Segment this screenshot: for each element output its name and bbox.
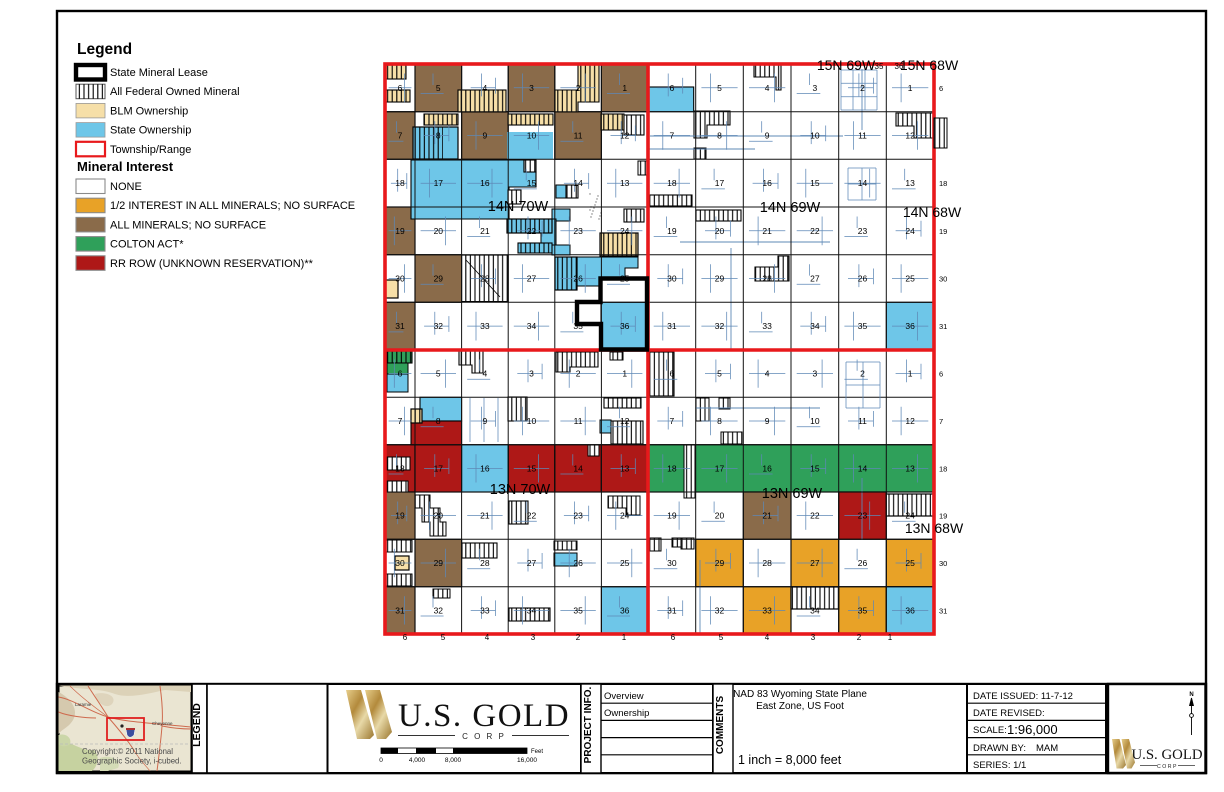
svg-text:32: 32	[715, 605, 725, 615]
svg-text:4: 4	[483, 83, 488, 93]
svg-text:28: 28	[480, 274, 490, 284]
svg-text:7: 7	[670, 131, 675, 141]
svg-text:9: 9	[483, 131, 488, 141]
svg-text:4: 4	[485, 633, 490, 642]
svg-text:NONE: NONE	[110, 181, 142, 193]
svg-text:19: 19	[667, 511, 677, 521]
svg-text:2: 2	[857, 633, 862, 642]
svg-text:15: 15	[810, 178, 820, 188]
svg-text:17: 17	[434, 463, 444, 473]
svg-text:24: 24	[620, 511, 630, 521]
svg-text:30: 30	[939, 275, 947, 284]
svg-text:23: 23	[573, 226, 583, 236]
svg-text:19: 19	[939, 227, 947, 236]
svg-text:2: 2	[860, 83, 865, 93]
svg-text:12: 12	[620, 131, 630, 141]
svg-text:21: 21	[762, 226, 772, 236]
svg-text:31: 31	[939, 322, 947, 331]
svg-text:1 inch = 8,000 feet: 1 inch = 8,000 feet	[738, 753, 842, 767]
svg-text:NAD 83 Wyoming State Plane: NAD 83 Wyoming State Plane	[733, 689, 867, 700]
svg-text:35: 35	[858, 321, 868, 331]
svg-text:24: 24	[620, 226, 630, 236]
svg-text:1: 1	[908, 369, 913, 379]
svg-text:29: 29	[715, 558, 725, 568]
svg-text:26: 26	[858, 558, 868, 568]
svg-text:3: 3	[529, 83, 534, 93]
svg-text:14N 69W: 14N 69W	[760, 200, 821, 216]
svg-text:22: 22	[810, 226, 820, 236]
svg-text:U.S. GOLD: U.S. GOLD	[1131, 747, 1202, 763]
svg-text:9: 9	[765, 416, 770, 426]
svg-text:Mineral Interest: Mineral Interest	[77, 159, 174, 174]
svg-text:5: 5	[719, 633, 724, 642]
svg-text:8: 8	[717, 131, 722, 141]
svg-text:20: 20	[715, 511, 725, 521]
svg-text:20: 20	[434, 511, 444, 521]
svg-text:COLTON ACT*: COLTON ACT*	[110, 239, 184, 251]
svg-text:3: 3	[813, 83, 818, 93]
svg-text:23: 23	[858, 511, 868, 521]
svg-text:32: 32	[434, 605, 444, 615]
svg-text:26: 26	[858, 274, 868, 284]
svg-text:15N 69W: 15N 69W	[817, 57, 876, 73]
svg-text:31: 31	[667, 321, 677, 331]
svg-text:10: 10	[810, 416, 820, 426]
svg-text:25: 25	[620, 558, 630, 568]
svg-text:8: 8	[717, 416, 722, 426]
svg-text:11: 11	[858, 416, 867, 426]
svg-text:7: 7	[670, 416, 675, 426]
svg-text:All Federal Owned Mineral: All Federal Owned Mineral	[110, 86, 240, 98]
svg-text:18: 18	[939, 179, 947, 188]
svg-text:35: 35	[573, 605, 583, 615]
svg-text:1:96,000: 1:96,000	[1007, 722, 1058, 737]
svg-text:State Mineral Lease: State Mineral Lease	[110, 67, 208, 79]
svg-text:C O R P: C O R P	[462, 732, 506, 741]
svg-text:31: 31	[939, 606, 947, 615]
svg-text:4: 4	[483, 369, 488, 379]
svg-text:30: 30	[667, 274, 677, 284]
svg-text:18: 18	[667, 178, 677, 188]
svg-text:15: 15	[527, 463, 537, 473]
svg-text:30: 30	[939, 559, 947, 568]
svg-text:3: 3	[813, 369, 818, 379]
svg-text:16: 16	[762, 463, 772, 473]
svg-text:8,000: 8,000	[445, 757, 462, 764]
svg-text:29: 29	[434, 558, 444, 568]
svg-text:36: 36	[905, 321, 915, 331]
svg-text:East Zone, US Foot: East Zone, US Foot	[756, 701, 844, 712]
svg-text:5: 5	[436, 83, 441, 93]
svg-text:Ownership: Ownership	[604, 708, 649, 719]
svg-text:24: 24	[905, 226, 915, 236]
svg-text:18: 18	[395, 178, 405, 188]
svg-text:9: 9	[483, 416, 488, 426]
svg-text:13: 13	[620, 463, 630, 473]
svg-text:16: 16	[762, 178, 772, 188]
svg-text:14: 14	[858, 463, 868, 473]
svg-text:N: N	[1189, 692, 1193, 698]
svg-text:27: 27	[810, 558, 820, 568]
svg-text:11: 11	[574, 131, 583, 141]
svg-text:6: 6	[939, 370, 943, 379]
svg-text:COMMENTS: COMMENTS	[715, 696, 726, 755]
svg-text:Copyright:© 2011 National: Copyright:© 2011 National	[82, 747, 173, 756]
svg-text:33: 33	[762, 321, 772, 331]
svg-text:RR ROW (UNKNOWN RESERVATION)**: RR ROW (UNKNOWN RESERVATION)**	[110, 258, 314, 270]
svg-text:35: 35	[858, 605, 868, 615]
svg-text:34: 34	[810, 605, 820, 615]
svg-text:14N 68W: 14N 68W	[903, 204, 962, 220]
svg-text:1: 1	[622, 633, 627, 642]
svg-text:Laramie: Laramie	[75, 702, 92, 707]
svg-text:25: 25	[905, 558, 915, 568]
svg-text:10: 10	[810, 131, 820, 141]
svg-text:34: 34	[810, 321, 820, 331]
svg-text:27: 27	[527, 274, 537, 284]
svg-text:10: 10	[527, 131, 537, 141]
svg-text:31: 31	[667, 605, 677, 615]
svg-text:17: 17	[434, 178, 444, 188]
svg-text:14: 14	[573, 463, 583, 473]
svg-text:10: 10	[527, 416, 537, 426]
svg-text:30: 30	[667, 558, 677, 568]
svg-text:5: 5	[717, 83, 722, 93]
svg-text:19: 19	[395, 226, 405, 236]
svg-text:22: 22	[527, 511, 537, 521]
svg-text:20: 20	[715, 226, 725, 236]
svg-text:36: 36	[620, 321, 630, 331]
svg-text:Legend: Legend	[77, 41, 132, 58]
svg-text:Township/Range: Township/Range	[110, 144, 191, 156]
svg-text:U.S. GOLD: U.S. GOLD	[398, 698, 570, 734]
svg-text:13: 13	[905, 463, 915, 473]
svg-text:11: 11	[574, 416, 583, 426]
svg-text:13N 69W: 13N 69W	[762, 486, 823, 502]
svg-text:3: 3	[529, 369, 534, 379]
svg-text:1: 1	[622, 83, 627, 93]
svg-text:3: 3	[811, 633, 816, 642]
svg-text:18: 18	[939, 464, 947, 473]
svg-text:36: 36	[620, 605, 630, 615]
svg-text:16: 16	[480, 463, 490, 473]
svg-text:6: 6	[398, 369, 403, 379]
svg-text:12: 12	[905, 416, 915, 426]
svg-text:18: 18	[667, 463, 677, 473]
svg-text:30: 30	[395, 274, 405, 284]
svg-text:19: 19	[667, 226, 677, 236]
svg-text:5: 5	[436, 369, 441, 379]
svg-text:26: 26	[573, 274, 583, 284]
svg-text:33: 33	[480, 605, 490, 615]
svg-text:0: 0	[379, 757, 383, 764]
svg-text:8: 8	[436, 131, 441, 141]
svg-text:MAM: MAM	[1036, 743, 1058, 754]
svg-text:23: 23	[858, 226, 868, 236]
svg-text:1/2 INTEREST IN ALL MINERALS;: 1/2 INTEREST IN ALL MINERALS; NO SURFACE	[110, 200, 355, 212]
svg-text:33: 33	[480, 321, 490, 331]
svg-text:1: 1	[908, 83, 913, 93]
svg-text:19: 19	[395, 511, 405, 521]
svg-text:34: 34	[527, 605, 537, 615]
svg-text:11: 11	[858, 131, 867, 141]
svg-text:13: 13	[620, 178, 630, 188]
svg-text:2: 2	[860, 369, 865, 379]
svg-text:32: 32	[715, 321, 725, 331]
svg-text:21: 21	[480, 226, 490, 236]
svg-text:2: 2	[576, 369, 581, 379]
svg-text:27: 27	[810, 274, 820, 284]
svg-text:33: 33	[762, 605, 772, 615]
svg-text:2: 2	[576, 83, 581, 93]
svg-text:32: 32	[434, 321, 444, 331]
svg-text:23: 23	[573, 511, 583, 521]
svg-text:4: 4	[765, 369, 770, 379]
svg-text:4: 4	[765, 633, 770, 642]
svg-text:6: 6	[670, 369, 675, 379]
svg-text:20: 20	[434, 226, 444, 236]
svg-text:6: 6	[403, 633, 408, 642]
svg-text:1: 1	[888, 633, 893, 642]
svg-text:15N 68W: 15N 68W	[900, 57, 959, 73]
svg-text:25: 25	[905, 274, 915, 284]
svg-text:19: 19	[939, 512, 947, 521]
svg-text:2: 2	[576, 633, 581, 642]
svg-text:16,000: 16,000	[517, 757, 537, 764]
svg-text:21: 21	[480, 511, 490, 521]
svg-text:30: 30	[395, 558, 405, 568]
svg-text:14: 14	[573, 178, 583, 188]
svg-text:12: 12	[905, 131, 915, 141]
svg-text:6: 6	[398, 83, 403, 93]
svg-text:Geographic Society, i-cubed.: Geographic Society, i-cubed.	[82, 757, 182, 766]
svg-text:7: 7	[398, 416, 403, 426]
svg-text:CORP: CORP	[1157, 764, 1178, 770]
svg-text:29: 29	[715, 274, 725, 284]
svg-text:1: 1	[622, 369, 627, 379]
svg-text:7: 7	[398, 131, 403, 141]
svg-text:35: 35	[875, 62, 884, 71]
svg-text:13N 68W: 13N 68W	[905, 520, 964, 536]
svg-text:State Ownership: State Ownership	[110, 125, 191, 137]
svg-text:4: 4	[765, 83, 770, 93]
svg-text:28: 28	[762, 274, 772, 284]
svg-text:31: 31	[395, 605, 405, 615]
svg-text:Feet: Feet	[531, 749, 543, 755]
svg-text:16: 16	[480, 178, 490, 188]
svg-text:DATE ISSUED: 11-7-12: DATE ISSUED: 11-7-12	[973, 691, 1073, 702]
svg-text:26: 26	[573, 558, 583, 568]
svg-text:14: 14	[858, 178, 868, 188]
svg-text:13N 70W: 13N 70W	[490, 482, 551, 498]
svg-text:3: 3	[531, 633, 536, 642]
svg-text:DATE REVISED:: DATE REVISED:	[973, 708, 1045, 719]
svg-text:18: 18	[395, 463, 405, 473]
svg-text:Overview: Overview	[604, 691, 644, 702]
svg-text:DRAWN BY:: DRAWN BY:	[973, 743, 1026, 754]
svg-text:SERIES: 1/1: SERIES: 1/1	[973, 760, 1026, 771]
svg-text:PROJECT INFO.: PROJECT INFO.	[583, 686, 594, 763]
svg-text:28: 28	[762, 558, 772, 568]
svg-text:22: 22	[810, 511, 820, 521]
svg-text:12: 12	[620, 416, 630, 426]
svg-text:LEGEND: LEGEND	[191, 703, 203, 747]
svg-text:7: 7	[939, 417, 943, 426]
svg-text:8: 8	[436, 416, 441, 426]
svg-text:4,000: 4,000	[409, 757, 426, 764]
svg-text:27: 27	[527, 558, 537, 568]
svg-text:ALL MINERALS; NO SURFACE: ALL MINERALS; NO SURFACE	[110, 219, 266, 231]
svg-text:22: 22	[527, 226, 537, 236]
svg-text:SCALE:: SCALE:	[973, 725, 1007, 736]
svg-text:6: 6	[939, 84, 943, 93]
svg-text:17: 17	[715, 178, 725, 188]
svg-text:13: 13	[905, 178, 915, 188]
svg-text:Cheyenne: Cheyenne	[152, 721, 173, 726]
svg-text:17: 17	[715, 463, 725, 473]
svg-text:5: 5	[441, 633, 446, 642]
svg-text:6: 6	[670, 83, 675, 93]
svg-text:BLM Ownership: BLM Ownership	[110, 105, 188, 117]
svg-text:5: 5	[717, 369, 722, 379]
svg-text:28: 28	[480, 558, 490, 568]
svg-text:15: 15	[810, 463, 820, 473]
svg-text:14N 70W: 14N 70W	[488, 199, 549, 215]
svg-text:6: 6	[671, 633, 676, 642]
svg-text:15: 15	[527, 178, 537, 188]
svg-text:36: 36	[905, 605, 915, 615]
svg-text:29: 29	[434, 274, 444, 284]
svg-text:21: 21	[762, 511, 772, 521]
svg-text:31: 31	[395, 321, 405, 331]
svg-text:34: 34	[527, 321, 537, 331]
svg-text:9: 9	[765, 131, 770, 141]
